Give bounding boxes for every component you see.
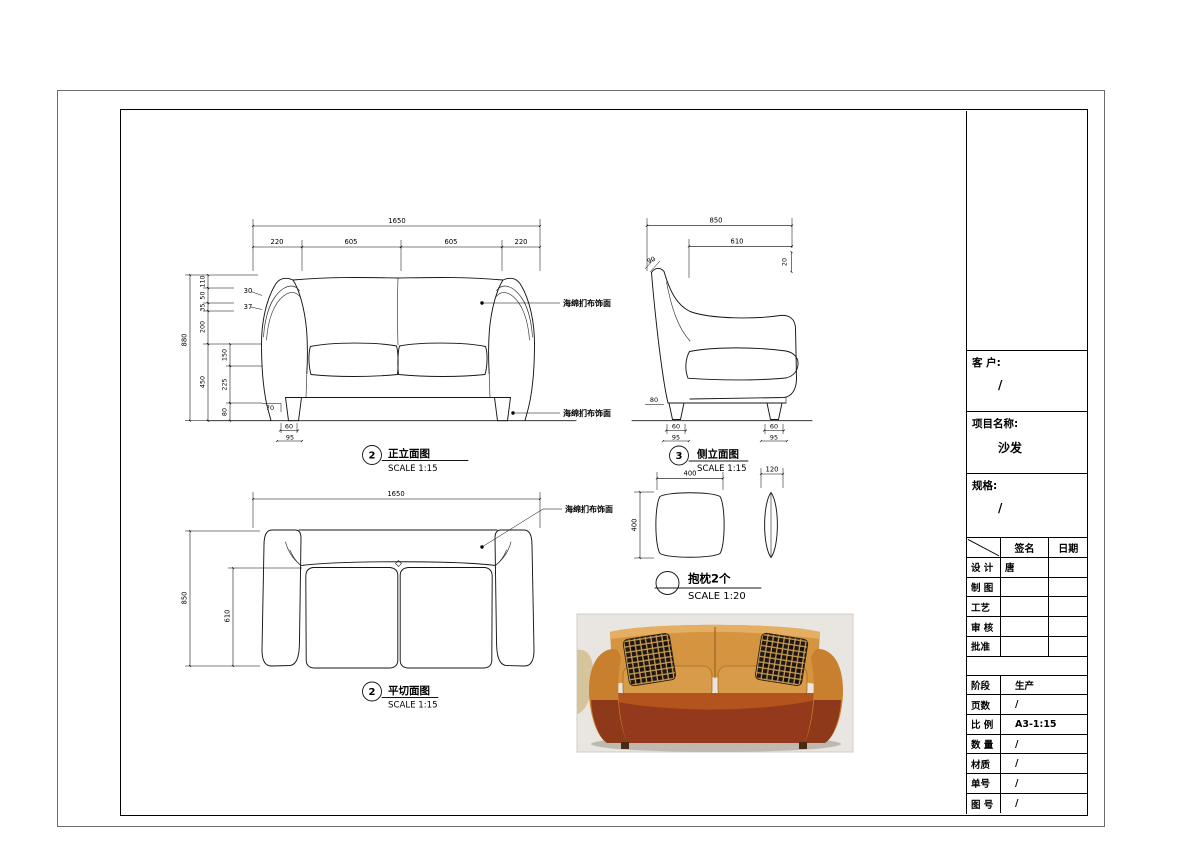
info-row-value: /: [1001, 794, 1088, 814]
sign-row-date: [1049, 597, 1088, 617]
pillow-detail: 400 400 120 抱枕2个 SCALE 1:20: [631, 466, 784, 603]
sign-row-signature: [1001, 597, 1049, 617]
sign-row-date: [1049, 578, 1088, 598]
diagonal-cell: [967, 538, 1001, 558]
client-value: /: [998, 378, 1085, 392]
svg-text:80: 80: [650, 396, 658, 404]
project-section: 项目名称: 沙发: [967, 411, 1088, 473]
callout-text: 海绵扪布饰面: [563, 408, 611, 418]
svg-text:3: 3: [676, 451, 683, 462]
signature-table: 签名 日期 设 计 唐 制 图 工艺 审 核 批准: [967, 537, 1088, 657]
svg-text:605: 605: [445, 238, 458, 246]
sign-row-label: 设 计: [967, 558, 1001, 578]
cad-drawing: 1650 220 605 605 220 880 110 50 35 200 4…: [120, 109, 968, 817]
svg-text:610: 610: [731, 237, 744, 245]
svg-text:610: 610: [224, 610, 232, 623]
svg-text:60: 60: [285, 423, 293, 431]
sign-row-signature: [1001, 637, 1049, 657]
info-row-label: 比 例: [967, 715, 1001, 735]
svg-text:605: 605: [345, 238, 358, 246]
svg-text:20: 20: [781, 258, 789, 266]
sign-row-signature: [1001, 578, 1049, 598]
title-block-empty-area: [967, 111, 1088, 351]
info-row-label: 数 量: [967, 735, 1001, 755]
spec-label: 规格:: [972, 478, 1085, 493]
dim-text: 1650: [388, 217, 405, 225]
project-label: 项目名称:: [972, 416, 1085, 431]
info-row-value: A3-1:15: [1001, 715, 1088, 735]
svg-text:225: 225: [221, 378, 229, 390]
front-elevation-view: 1650 220 605 605 220 880 110 50 35 200 4…: [181, 217, 612, 474]
svg-text:95: 95: [286, 434, 294, 442]
svg-text:200: 200: [199, 321, 207, 333]
info-row-label: 阶段: [967, 676, 1001, 696]
svg-text:60: 60: [672, 423, 680, 431]
sign-row-label: 审 核: [967, 617, 1001, 637]
svg-text:95: 95: [770, 434, 778, 442]
info-row-value: /: [1001, 695, 1088, 715]
svg-text:850: 850: [710, 217, 723, 225]
client-section: 客 户: /: [967, 350, 1088, 411]
svg-text:1650: 1650: [387, 490, 404, 498]
view-scale: SCALE 1:15: [697, 464, 747, 474]
svg-text:850: 850: [181, 592, 189, 605]
svg-text:50: 50: [199, 291, 207, 299]
info-row-value: 生产: [1001, 676, 1088, 696]
svg-text:35: 35: [199, 303, 207, 311]
client-label: 客 户:: [972, 355, 1085, 370]
pillow-label: 抱枕2个: [688, 572, 731, 586]
info-table: 阶段 生产 页数 / 比 例 A3-1:15 数 量 / 材质 / 单号 / 图…: [967, 675, 1088, 814]
sign-row-label: 工艺: [967, 597, 1001, 617]
project-value: 沙发: [998, 439, 1085, 456]
sign-row-label: 批准: [967, 637, 1001, 657]
view-title: 侧立面图: [697, 448, 739, 461]
svg-text:2: 2: [369, 687, 376, 698]
sign-row-date: [1049, 558, 1088, 578]
svg-text:400: 400: [684, 470, 697, 478]
info-row-value: /: [1001, 754, 1088, 774]
info-row-value: /: [1001, 735, 1088, 755]
svg-text:90: 90: [646, 255, 657, 266]
plaid-pillow-left: [623, 633, 677, 687]
signature-header: 签名: [1001, 538, 1049, 558]
svg-text:95: 95: [672, 434, 680, 442]
sign-row-signature: 唐: [1001, 558, 1049, 578]
svg-text:120: 120: [766, 466, 779, 474]
spec-section: 规格: /: [967, 473, 1088, 538]
info-row-label: 单号: [967, 774, 1001, 794]
sign-row-date: [1049, 617, 1088, 637]
svg-text:880: 880: [181, 334, 189, 347]
side-elevation-view: 850 610 20 90 80 60 95 60: [632, 217, 812, 474]
title-block-gap: [967, 657, 1088, 675]
spec-value: /: [998, 501, 1085, 515]
info-row-label: 材质: [967, 754, 1001, 774]
sign-row-signature: [1001, 617, 1049, 637]
svg-text:110: 110: [199, 275, 207, 287]
svg-text:60: 60: [770, 423, 778, 431]
info-row-value: /: [1001, 774, 1088, 794]
view-title: 平切面图: [388, 685, 430, 697]
plan-view: 1650 850 610 海绵扪布饰面 2 平切面图 SCALE 1:15: [181, 490, 614, 711]
svg-text:2: 2: [369, 451, 376, 462]
svg-text:220: 220: [515, 238, 528, 246]
drawing-sheet: { "views": { "front": { "num": "2", "nam…: [0, 0, 1191, 842]
info-row-label: 页数: [967, 695, 1001, 715]
sofa-photo: [577, 614, 853, 752]
svg-text:30: 30: [244, 287, 253, 295]
date-header: 日期: [1049, 538, 1088, 558]
svg-text:80: 80: [221, 408, 229, 416]
view-title: 正立面图: [388, 447, 430, 460]
callout-text: 海绵扪布饰面: [563, 298, 611, 308]
title-block: 客 户: / 项目名称: 沙发 规格: / 签名 日期 设 计 唐 制 图 工艺…: [966, 111, 1088, 814]
callout-text: 海绵扪布饰面: [565, 504, 613, 514]
view-scale: SCALE 1:15: [388, 464, 438, 474]
svg-text:400: 400: [631, 519, 639, 532]
svg-text:450: 450: [199, 376, 207, 388]
info-row-label: 图 号: [967, 794, 1001, 814]
sign-row-label: 制 图: [967, 578, 1001, 598]
svg-text:150: 150: [221, 349, 229, 361]
pillow-scale: SCALE 1:20: [688, 591, 746, 602]
sign-row-date: [1049, 637, 1088, 657]
view-scale: SCALE 1:15: [388, 701, 438, 711]
svg-text:220: 220: [271, 238, 284, 246]
plaid-pillow-right: [755, 633, 809, 687]
